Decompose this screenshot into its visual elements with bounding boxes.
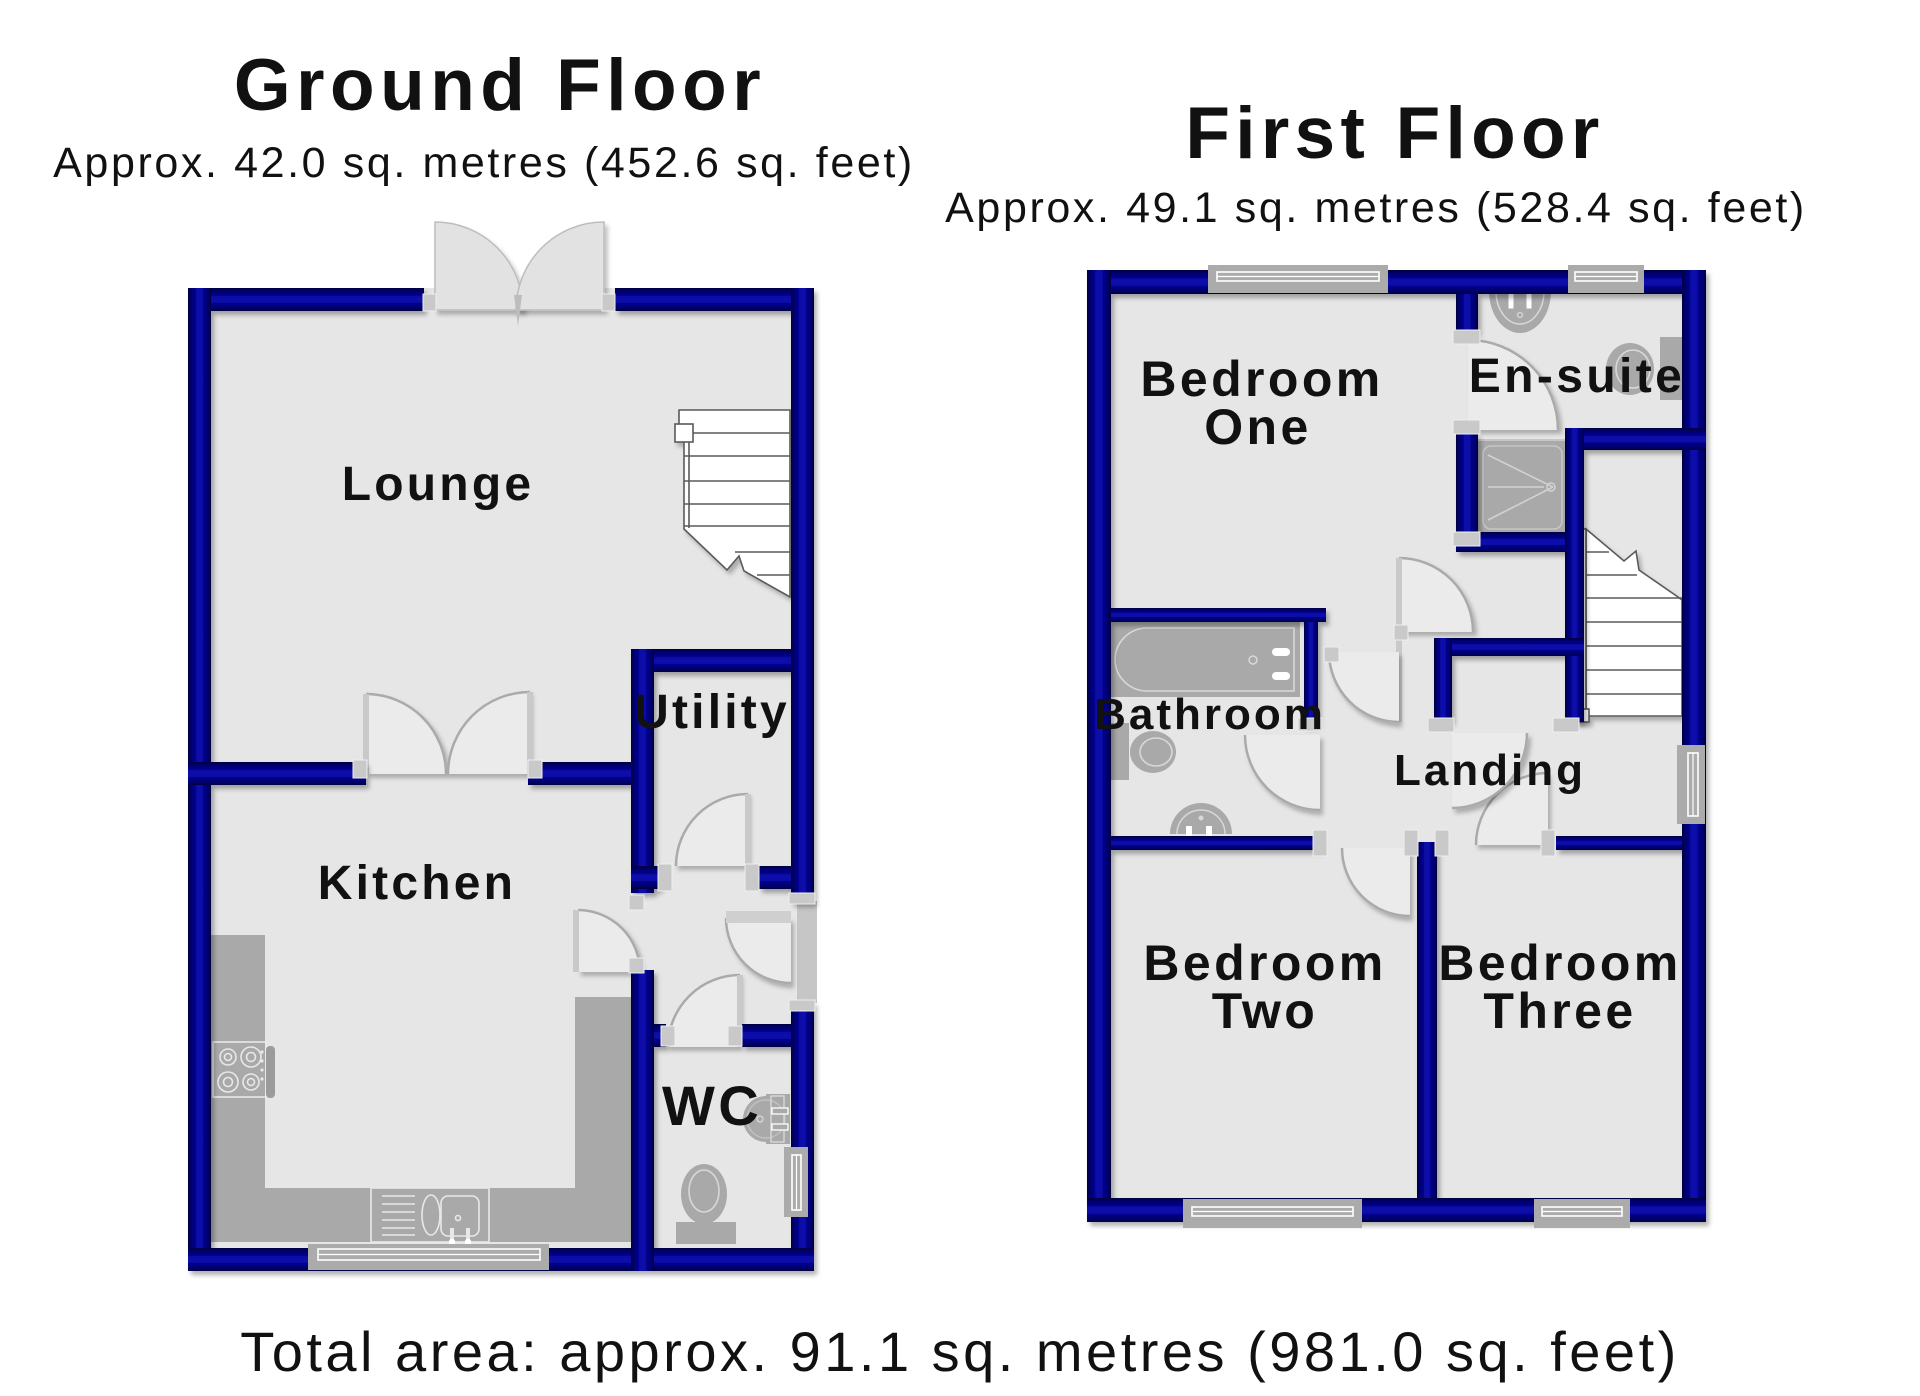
svg-text:Kitchen: Kitchen: [318, 857, 516, 910]
svg-text:Total area: approx. 91.1 sq. m: Total area: approx. 91.1 sq. metres (981…: [240, 1320, 1680, 1383]
svg-text:Bathroom: Bathroom: [1094, 690, 1326, 739]
svg-text:Lounge: Lounge: [342, 458, 535, 511]
svg-text:Ground Floor: Ground Floor: [234, 45, 766, 126]
svg-text:Approx. 49.1 sq. metres (528.4: Approx. 49.1 sq. metres (528.4 sq. feet): [945, 184, 1807, 232]
svg-text:Utility: Utility: [634, 686, 790, 739]
svg-text:One: One: [1204, 399, 1311, 455]
svg-text:First Floor: First Floor: [1185, 93, 1604, 174]
svg-text:Three: Three: [1483, 983, 1636, 1039]
svg-text:WC: WC: [662, 1074, 762, 1137]
svg-text:En-suite: En-suite: [1469, 350, 1686, 403]
svg-text:Landing: Landing: [1394, 746, 1586, 795]
svg-text:Approx. 42.0 sq. metres (452.6: Approx. 42.0 sq. metres (452.6 sq. feet): [53, 139, 915, 187]
svg-text:Two: Two: [1212, 983, 1318, 1039]
